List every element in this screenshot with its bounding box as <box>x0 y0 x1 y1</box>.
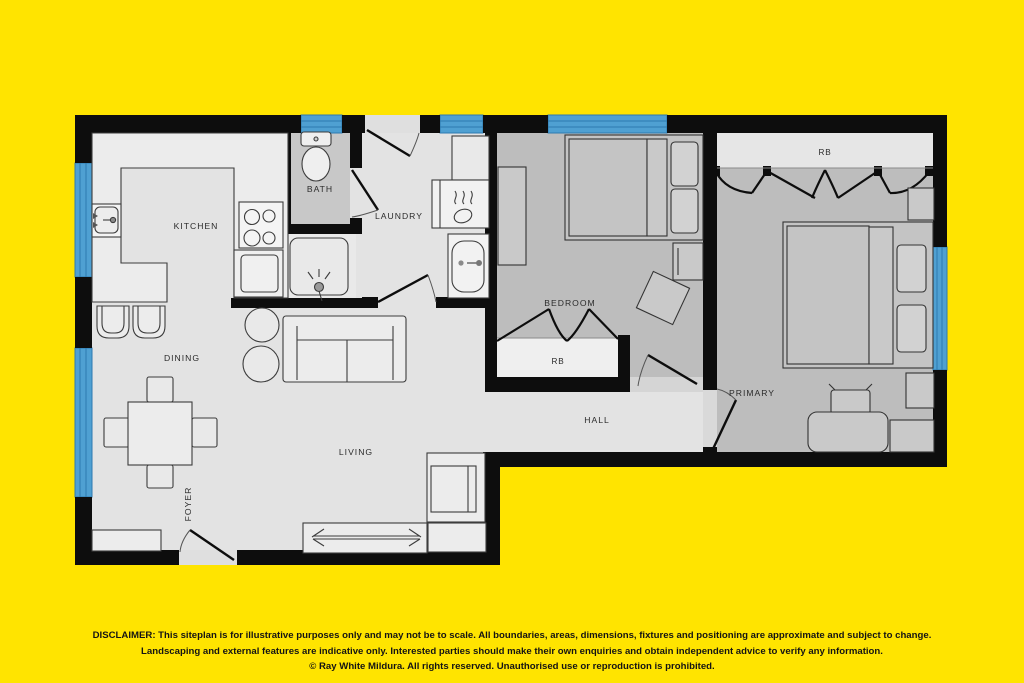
disclaimer-line-3: © Ray White Mildura. All rights reserved… <box>0 659 1024 675</box>
laundry-bench <box>452 136 489 180</box>
disclaimer-line-1: DISCLAIMER: This siteplan is for illustr… <box>0 628 1024 644</box>
living-label: LIVING <box>339 447 373 457</box>
window-left-dining <box>75 348 92 497</box>
bedroom-robe-label: RB <box>552 357 565 366</box>
foyer-label: FOYER <box>183 487 193 522</box>
primary-bedside-top-icon <box>908 188 934 220</box>
side-table-icon <box>428 523 486 552</box>
washing-machine-icon <box>432 180 489 228</box>
round-table-icon-2 <box>243 346 279 382</box>
bedroom-wardrobe-icon <box>498 167 526 265</box>
bedroom-bedside-icon <box>673 243 703 280</box>
window-right-primary <box>933 247 947 370</box>
floor-plan: KITCHEN BATH LAUNDRY BEDROOM RB RB PRIMA… <box>0 0 1024 683</box>
bath-label: BATH <box>307 184 333 194</box>
primary-corner-table-icon <box>890 420 934 452</box>
primary-door-threshold <box>703 390 717 447</box>
window-left-kitchen <box>75 163 92 277</box>
foyer-bench-icon <box>92 530 161 551</box>
dining-label: DINING <box>164 353 200 363</box>
kitchen-sink-icon <box>92 204 121 237</box>
front-door-opening <box>365 115 420 133</box>
laundry-label: LAUNDRY <box>375 211 423 221</box>
disclaimer-line-2: Landscaping and external features are in… <box>0 644 1024 660</box>
oven-icon <box>234 250 283 297</box>
window-top-laundry <box>440 115 483 133</box>
armchair-icon <box>427 453 485 522</box>
primary-bed-icon <box>783 222 933 368</box>
primary-label: PRIMARY <box>729 388 775 398</box>
sofa-icon <box>283 316 406 382</box>
round-table-icon <box>245 308 279 342</box>
toilet-icon <box>301 132 331 181</box>
primary-bedside-bottom-icon <box>906 373 934 408</box>
window-top-bedroom <box>548 115 667 133</box>
hall-label: HALL <box>584 415 610 425</box>
cooktop-icon <box>239 202 283 248</box>
disclaimer: DISCLAIMER: This siteplan is for illustr… <box>0 628 1024 675</box>
window-top-bath <box>301 115 342 133</box>
kitchen-label: KITCHEN <box>174 221 219 231</box>
bedroom-label: BEDROOM <box>544 298 595 308</box>
bedroom-door-threshold <box>630 377 703 392</box>
bedroom-bed-icon <box>565 135 703 240</box>
primary-robe-label: RB <box>819 148 832 157</box>
tv-unit-icon <box>303 523 427 553</box>
laundry-sink-icon <box>448 234 489 298</box>
